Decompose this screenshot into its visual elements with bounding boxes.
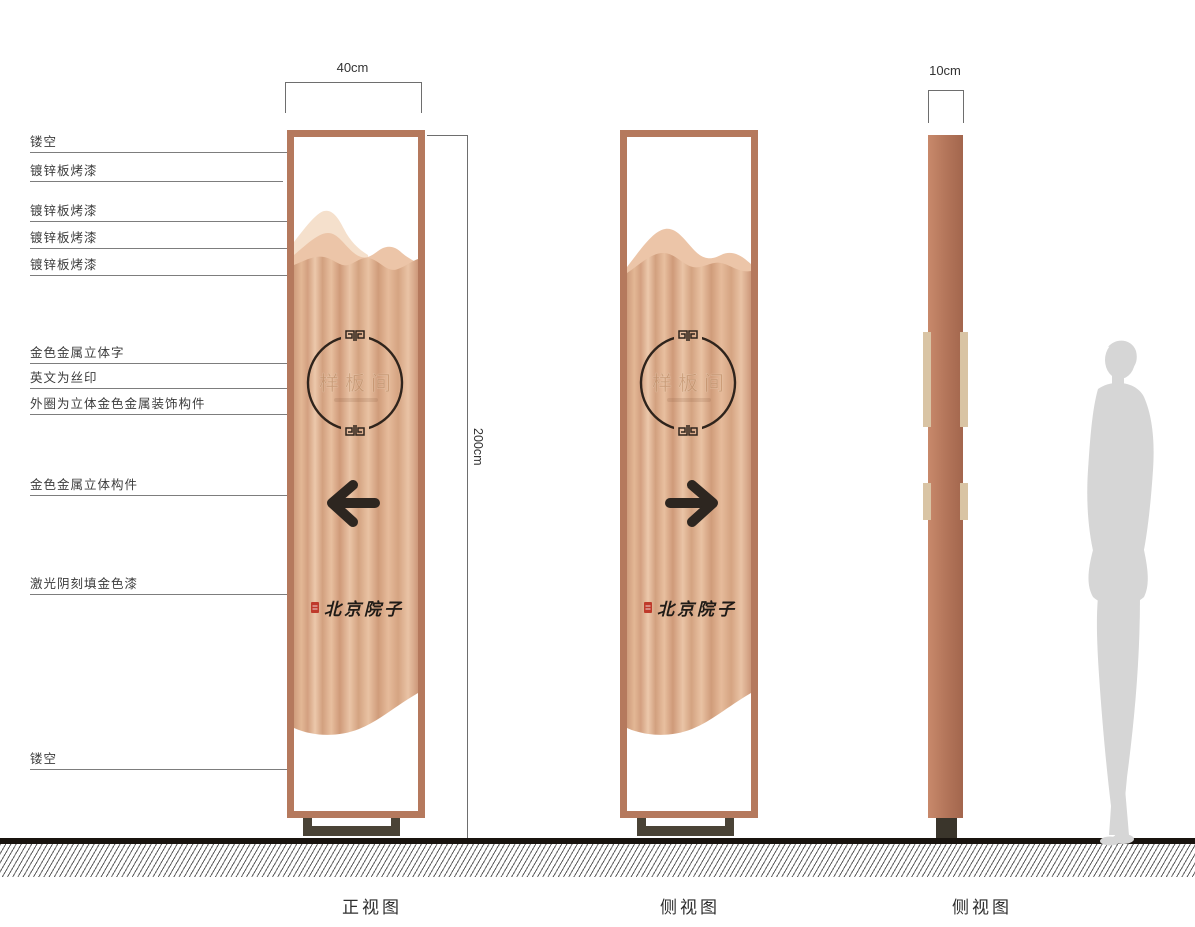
callout-label: 金色金属立体字	[30, 346, 125, 360]
dim-height-label: 200cm	[471, 428, 485, 466]
callout-hollow-bottom: 镂空	[30, 753, 303, 770]
panel-brushed	[294, 257, 418, 735]
callout-gold-arrow: 金色金属立体构件	[30, 479, 317, 496]
callout-galvanized-3: 镀锌板烤漆	[30, 232, 293, 249]
dim-depth-label: 10cm	[911, 63, 979, 78]
faint-english-subtitle	[667, 398, 711, 402]
callout-label: 金色金属立体构件	[30, 478, 138, 492]
totem-side-frame: 样板间 北京院子	[620, 130, 758, 818]
person-silhouette	[1060, 335, 1172, 847]
callout-laser-engraved: 激光阴刻填金色漆	[30, 578, 288, 595]
profile-gold-strip	[960, 483, 968, 520]
ring-fret-backing-top	[341, 329, 369, 342]
ground-hatch	[0, 844, 1195, 877]
circle-text: 样板间	[652, 372, 730, 395]
panel-brushed	[627, 253, 751, 735]
view-label-side: 侧视图	[620, 893, 760, 918]
brand-text: 北京院子	[657, 600, 737, 620]
profile-gold-strip	[960, 332, 968, 427]
callout-label: 镂空	[30, 135, 57, 149]
ring-fret-backing-bottom	[674, 424, 702, 437]
signage-drawing-canvas: 镂空 镀锌板烤漆 镀锌板烤漆 镀锌板烤漆 镀锌板烤漆 金色金属立体字 英文为丝印…	[0, 0, 1195, 927]
faint-english-subtitle	[334, 398, 378, 402]
circle-text: 样板间	[319, 372, 397, 395]
callout-label: 英文为丝印	[30, 371, 98, 385]
brand-text: 北京院子	[324, 600, 404, 620]
callout-hollow-top: 镂空	[30, 136, 306, 153]
callout-label: 镀锌板烤漆	[30, 164, 98, 178]
dim-width-label: 40cm	[285, 60, 420, 75]
totem-side-base	[637, 818, 734, 838]
view-label-profile: 侧视图	[912, 893, 1052, 918]
view-label-front: 正视图	[302, 893, 442, 918]
callout-label: 镀锌板烤漆	[30, 231, 98, 245]
callout-galvanized-2: 镀锌板烤漆	[30, 205, 322, 222]
totem-front-face: 样板间 北京院子	[294, 137, 418, 811]
dim-width-bracket	[285, 82, 422, 113]
callout-gold-letters: 金色金属立体字	[30, 347, 331, 364]
dim-height-tick	[427, 135, 467, 136]
totem-side-face: 样板间 北京院子	[627, 137, 751, 811]
callout-gold-ring: 外圈为立体金色金属装饰构件	[30, 398, 318, 415]
totem-front-base	[303, 818, 400, 838]
totem-front-frame: 样板间 北京院子	[287, 130, 425, 818]
base-bar	[303, 826, 400, 836]
seal-icon	[311, 602, 319, 613]
ring-fret-backing-top	[674, 329, 702, 342]
totem-profile-base	[936, 818, 957, 839]
dim-depth-bracket	[928, 90, 964, 123]
callout-label: 镀锌板烤漆	[30, 258, 98, 272]
callout-label: 激光阴刻填金色漆	[30, 577, 138, 591]
callout-label: 外圈为立体金色金属装饰构件	[30, 397, 206, 411]
callout-galvanized-1: 镀锌板烤漆	[30, 165, 283, 182]
ring-fret-backing-bottom	[341, 424, 369, 437]
profile-gold-strip	[923, 332, 931, 427]
callout-galvanized-4: 镀锌板烤漆	[30, 259, 291, 276]
seal-icon	[644, 602, 652, 613]
callout-label: 镂空	[30, 752, 57, 766]
profile-gold-strip	[923, 483, 931, 520]
dim-height-line	[467, 135, 468, 838]
callout-label: 镀锌板烤漆	[30, 204, 98, 218]
base-bar	[637, 826, 734, 836]
totem-profile-bar	[928, 135, 963, 818]
